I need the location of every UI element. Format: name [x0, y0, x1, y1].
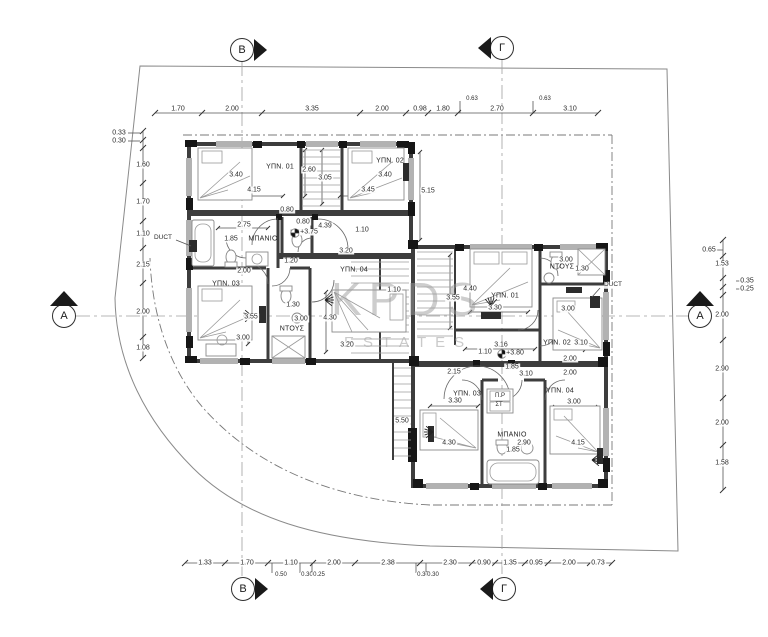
dim-label: 0.35	[739, 278, 755, 285]
dim-label: 0.65	[701, 247, 717, 254]
grid-marker-arrow-icon	[254, 39, 267, 61]
dim-label: 1.70	[135, 199, 151, 206]
dim-label: 0.73	[590, 560, 606, 567]
grid-marker-a-left: A	[52, 304, 76, 328]
dim-label: 1.70	[239, 560, 255, 567]
dim-label: 2.38	[380, 560, 396, 567]
dim-label: 1.10	[386, 287, 402, 294]
dim-label: 3.55	[445, 295, 461, 302]
dim-label: 2.00	[236, 268, 252, 275]
grid-marker-gamma-bottom: Γ	[492, 577, 516, 601]
grid-marker-arrow-icon	[480, 578, 493, 600]
dim-label: 1.53	[714, 261, 730, 268]
room-label: ΥΠΝ. 01	[491, 293, 519, 300]
grid-marker-letter: B	[238, 44, 245, 56]
grid-marker-b-bottom: B	[231, 577, 255, 601]
dim-label: 2.90	[516, 440, 532, 447]
dim-label: Π.Ρ	[494, 393, 506, 399]
dim-label: 5.15	[420, 188, 436, 195]
dim-label: 3.00	[293, 316, 309, 323]
floor-plan-canvas: KPDS ESTATES DUCT DUCT 1.702.003.352.000…	[0, 0, 768, 637]
dim-label: 0.63	[465, 96, 479, 102]
dim-label: 1.20	[283, 258, 299, 265]
dim-label: 2.00	[562, 370, 578, 377]
dim-label: 3.10	[518, 371, 534, 378]
room-label: ΥΠΝ. 02	[543, 340, 571, 347]
dim-label: 3.40	[228, 172, 244, 179]
grid-marker-letter: Γ	[499, 42, 505, 54]
dim-label: 0.90	[476, 560, 492, 567]
dim-label: 0.63	[538, 96, 552, 102]
duct-label-right: DUCT	[604, 282, 622, 289]
grid-marker-arrow-icon	[686, 291, 714, 306]
dim-label: 1.35	[502, 560, 518, 567]
dim-label: 4.40	[462, 286, 478, 293]
dim-label: 1.85	[504, 364, 520, 371]
dim-label: 1.80	[435, 106, 451, 113]
dim-label: 2.00	[561, 560, 577, 567]
dim-label: 0.50	[274, 572, 288, 578]
dim-label: 0.25	[312, 572, 326, 578]
dim-label: 2.90	[714, 366, 730, 373]
dim-label: 2.30	[442, 560, 458, 567]
dim-label: 1.33	[197, 560, 213, 567]
dim-label: 3.00	[558, 257, 574, 264]
grid-marker-a-right: A	[688, 304, 712, 328]
dim-label: 4.30	[322, 315, 338, 322]
dim-label: 1.30	[574, 266, 590, 273]
dim-label: 3.10	[573, 340, 589, 347]
dim-label: 3.00	[235, 335, 251, 342]
dim-label: 0.30	[111, 138, 127, 145]
dim-label: 3.10	[562, 106, 578, 113]
grid-marker-arrow-icon	[50, 291, 78, 306]
dim-label: 3.35	[304, 106, 320, 113]
grid-marker-b-top: B	[230, 38, 254, 62]
dim-label: 0.80	[279, 207, 295, 214]
duct-label-left: DUCT	[154, 235, 172, 242]
dim-label: 0.30	[426, 572, 440, 578]
dim-label: 1.10	[135, 231, 151, 238]
dim-label: 2.15	[135, 262, 151, 269]
dim-label: 3.00	[566, 399, 582, 406]
grid-marker-letter: A	[60, 310, 67, 322]
dim-label: 2.70	[489, 106, 505, 113]
dim-label: 1.10	[477, 349, 493, 356]
labels-layer: DUCT DUCT 1.702.003.352.000.981.802.703.…	[0, 0, 768, 637]
room-label: ΜΠΑΝΙΟ	[248, 236, 277, 243]
dim-label: 0.33	[111, 130, 127, 137]
dim-label: 3.00	[560, 306, 576, 313]
dim-label: 2.00	[562, 356, 578, 363]
grid-marker-letter: A	[696, 310, 703, 322]
room-label: ΝΤΟΥΣ	[280, 326, 304, 333]
dim-label: 3.30	[447, 398, 463, 405]
dim-label: 0.25	[739, 286, 755, 293]
dim-label: 2.00	[714, 312, 730, 319]
dim-label: 3.55	[243, 314, 259, 321]
dim-label: 4.15	[246, 187, 262, 194]
dim-label: 0.98	[412, 106, 428, 113]
dim-label: 1.30	[285, 302, 301, 309]
dim-label: 2.15	[446, 369, 462, 376]
dim-label: 0.80	[295, 219, 311, 226]
dim-label: 3.16	[493, 342, 509, 349]
dim-label: 5.50	[394, 418, 410, 425]
room-label: ΥΠΝ. 03	[212, 281, 240, 288]
dim-label: 3.40	[377, 172, 393, 179]
dim-label: 1.85	[223, 236, 239, 243]
dim-label: 2.00	[326, 560, 342, 567]
room-label: ΥΠΝ. 04	[546, 388, 574, 395]
dim-label: 3.20	[339, 342, 355, 349]
dim-label: 0.95	[528, 560, 544, 567]
dim-label: 3.05	[317, 175, 333, 182]
dim-label: 1.58	[714, 460, 730, 467]
grid-marker-letter: B	[239, 583, 246, 595]
dim-label: 1.10	[354, 227, 370, 234]
dim-label: ΣΤ	[494, 402, 503, 408]
dim-label: 2.00	[714, 420, 730, 427]
dim-label: 3.20	[338, 248, 354, 255]
room-label: ΝΤΟΥΣ	[550, 264, 574, 271]
grid-marker-arrow-icon	[478, 37, 491, 59]
dim-label: 2.00	[374, 106, 390, 113]
dim-label: 1.70	[170, 106, 186, 113]
dim-label: 3.45	[360, 187, 376, 194]
dim-label: +3.80	[505, 350, 525, 357]
room-label: ΥΠΝ. 03	[453, 391, 481, 398]
room-label: ΥΠΝ. 02	[376, 158, 404, 165]
dim-label: 1.08	[135, 345, 151, 352]
dim-label: 2.00	[224, 106, 240, 113]
grid-marker-arrow-icon	[255, 578, 268, 600]
room-label: ΜΠΑΝΙΟ	[497, 432, 526, 439]
dim-label: 1.85	[505, 447, 521, 454]
grid-marker-gamma-top: Γ	[490, 36, 514, 60]
dim-label: 2.60	[301, 167, 317, 174]
dim-label: 1.60	[135, 162, 151, 169]
grid-marker-letter: Γ	[501, 583, 507, 595]
dim-label: +3.75	[299, 229, 319, 236]
room-label: ΥΠΝ. 01	[266, 164, 294, 171]
dim-label: 1.10	[283, 560, 299, 567]
room-label: ΥΠΝ. 04	[340, 267, 368, 274]
dim-label: 4.15	[570, 440, 586, 447]
dim-label: 4.39	[317, 223, 333, 230]
dim-label: 2.00	[135, 309, 151, 316]
dim-label: 2.75	[236, 222, 252, 229]
dim-label: 3.30	[487, 305, 503, 312]
dim-label: 4.30	[441, 440, 457, 447]
